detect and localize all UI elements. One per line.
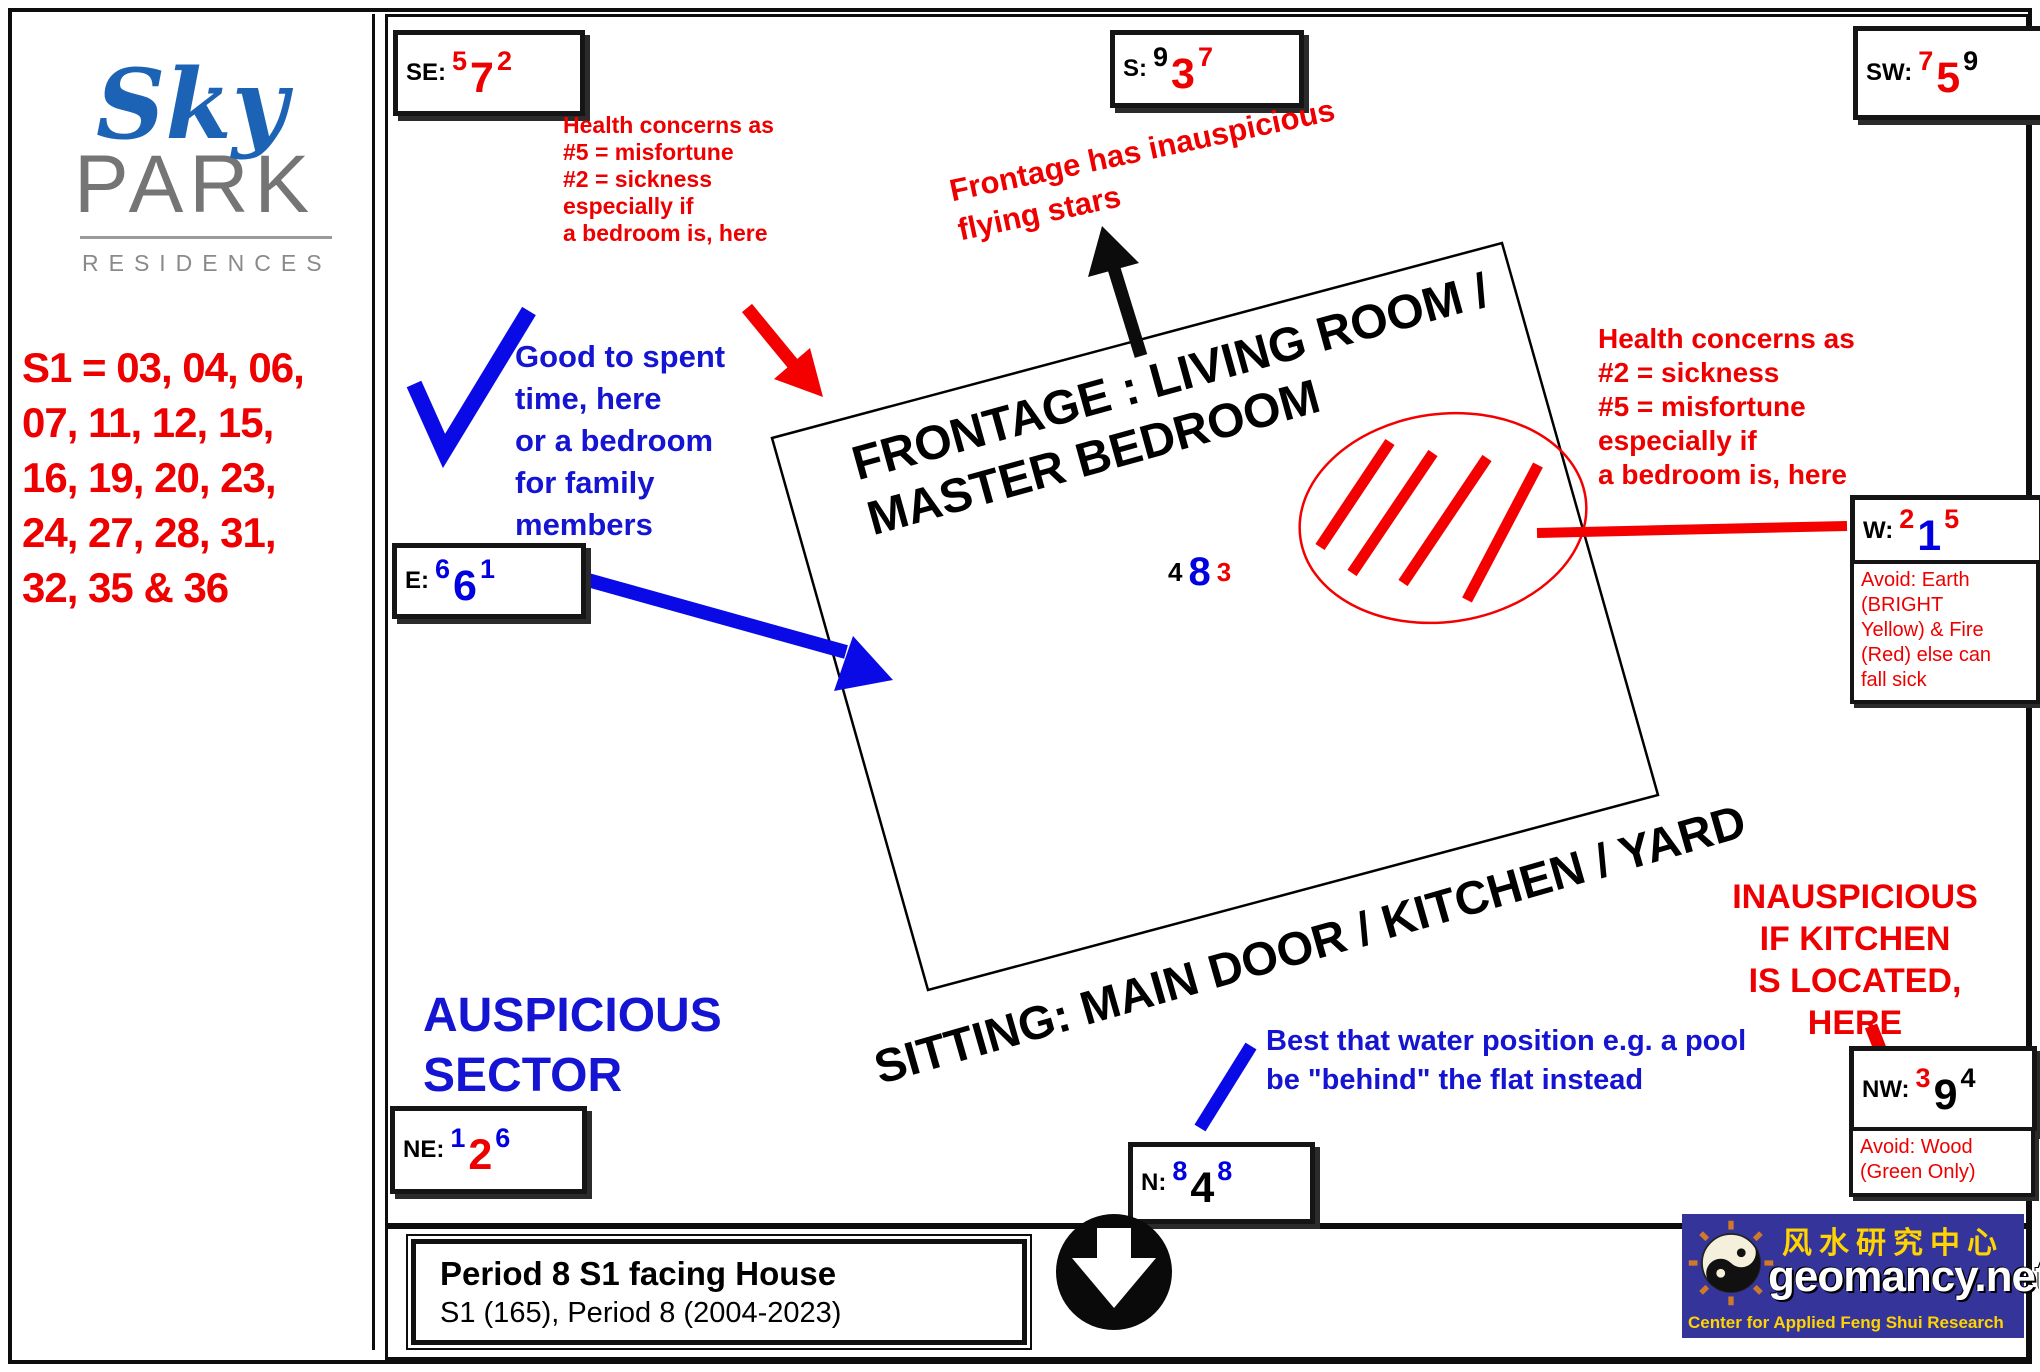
compass-box-ne: NE: 1 2 6 (390, 1106, 587, 1194)
star-nw-water: 3 (1916, 1063, 1931, 1094)
star-ne-water: 1 (450, 1123, 465, 1154)
frontage-arrow (1088, 226, 1141, 356)
period-summary-box: Period 8 S1 facing House S1 (165), Perio… (406, 1234, 1032, 1350)
compass-label-se: SE: (406, 59, 446, 87)
se-health-note: Health concerns as #5 = misfortune #2 = … (563, 112, 774, 247)
star-e-mountain: 1 (480, 554, 495, 585)
compass-box-sw: SW: 7 5 9 (1853, 26, 2040, 120)
star-w-base: 1 (1917, 512, 1941, 561)
star-se-water: 5 (452, 46, 467, 77)
period-title: Period 8 S1 facing House (440, 1255, 1022, 1293)
geomancy-logo[interactable]: 风水研究中心 geomancy.net Center for Applied F… (1682, 1214, 2024, 1338)
good-sector-note: Good to spent time, here or a bedroom fo… (515, 336, 725, 546)
nw-avoid-note: Avoid: Wood (Green Only) (1849, 1127, 2035, 1197)
compass-box-s: S: 9 3 7 (1110, 30, 1304, 108)
star-sw-mountain: 9 (1963, 46, 1978, 77)
compass-box-nw: NW: 3 9 4 (1849, 1046, 2037, 1134)
star-n-base: 4 (1190, 1164, 1214, 1213)
star-center-water: 4 (1168, 557, 1182, 588)
star-se-base: 7 (470, 54, 494, 103)
star-w-mountain: 5 (1944, 504, 1959, 535)
w-pointer-line (1537, 526, 1847, 533)
star-n-water: 8 (1172, 1156, 1187, 1187)
compass-box-e: E: 6 6 1 (392, 543, 586, 619)
auspicious-sector-label: AUSPICIOUS SECTOR (423, 986, 722, 1106)
brand-tagline: Center for Applied Feng Shui Research (1688, 1313, 2004, 1333)
star-w-water: 2 (1899, 504, 1914, 535)
center-stars: 4 8 3 (1168, 550, 1231, 595)
compass-label-ne: NE: (403, 1136, 444, 1164)
compass-box-w: W: 2 1 5 (1850, 495, 2040, 567)
star-s-mountain: 7 (1198, 42, 1213, 73)
period-subtitle: S1 (165), Period 8 (2004-2023) (440, 1297, 1022, 1330)
download-icon (1054, 1212, 1174, 1332)
w-health-note: Health concerns as #2 = sickness #5 = mi… (1598, 322, 1855, 492)
star-n-mountain: 8 (1217, 1156, 1232, 1187)
star-e-base: 6 (453, 562, 477, 611)
star-center-mountain: 3 (1217, 557, 1231, 588)
download-button[interactable] (1054, 1212, 1174, 1332)
compass-label-sw: SW: (1866, 59, 1912, 87)
auspicious-checkmark (414, 311, 529, 451)
w-avoid-note: Avoid: Earth (BRIGHT Yellow) & Fire (Red… (1850, 560, 2040, 704)
compass-label-n: N: (1141, 1169, 1166, 1197)
star-e-water: 6 (435, 554, 450, 585)
period-summary-inner: Period 8 S1 facing House S1 (165), Perio… (411, 1239, 1027, 1345)
compass-label-nw: NW: (1862, 1076, 1910, 1104)
star-nw-mountain: 4 (1961, 1063, 1976, 1094)
water-pointer-line (1200, 1046, 1251, 1128)
star-nw-base: 9 (1934, 1071, 1958, 1120)
star-center-base: 8 (1188, 550, 1210, 595)
compass-label-s: S: (1123, 55, 1147, 83)
star-s-base: 3 (1171, 50, 1195, 99)
compass-label-w: W: (1863, 517, 1893, 545)
water-position-note: Best that water position e.g. a pool be … (1266, 1022, 1746, 1100)
se-warning-arrow (747, 308, 823, 397)
feng-shui-chart-page: PARK Sky RESIDENCES S1 = 03, 04, 06, 07,… (0, 0, 2040, 1372)
star-s-water: 9 (1153, 42, 1168, 73)
kitchen-warning-note: INAUSPICIOUS IF KITCHEN IS LOCATED, HERE (1690, 876, 2020, 1044)
bagua-yinyang-icon (1687, 1219, 1775, 1307)
brand-site-name: geomancy.net (1768, 1252, 2040, 1302)
skypark-logo-sky: Sky (96, 48, 288, 161)
compass-box-se: SE: 5 7 2 (393, 30, 585, 116)
compass-label-e: E: (405, 567, 429, 595)
star-sw-base: 5 (1936, 54, 1960, 103)
star-ne-mountain: 6 (495, 1123, 510, 1154)
star-ne-base: 2 (468, 1131, 492, 1180)
star-sw-water: 7 (1918, 46, 1933, 77)
star-se-mountain: 2 (497, 46, 512, 77)
